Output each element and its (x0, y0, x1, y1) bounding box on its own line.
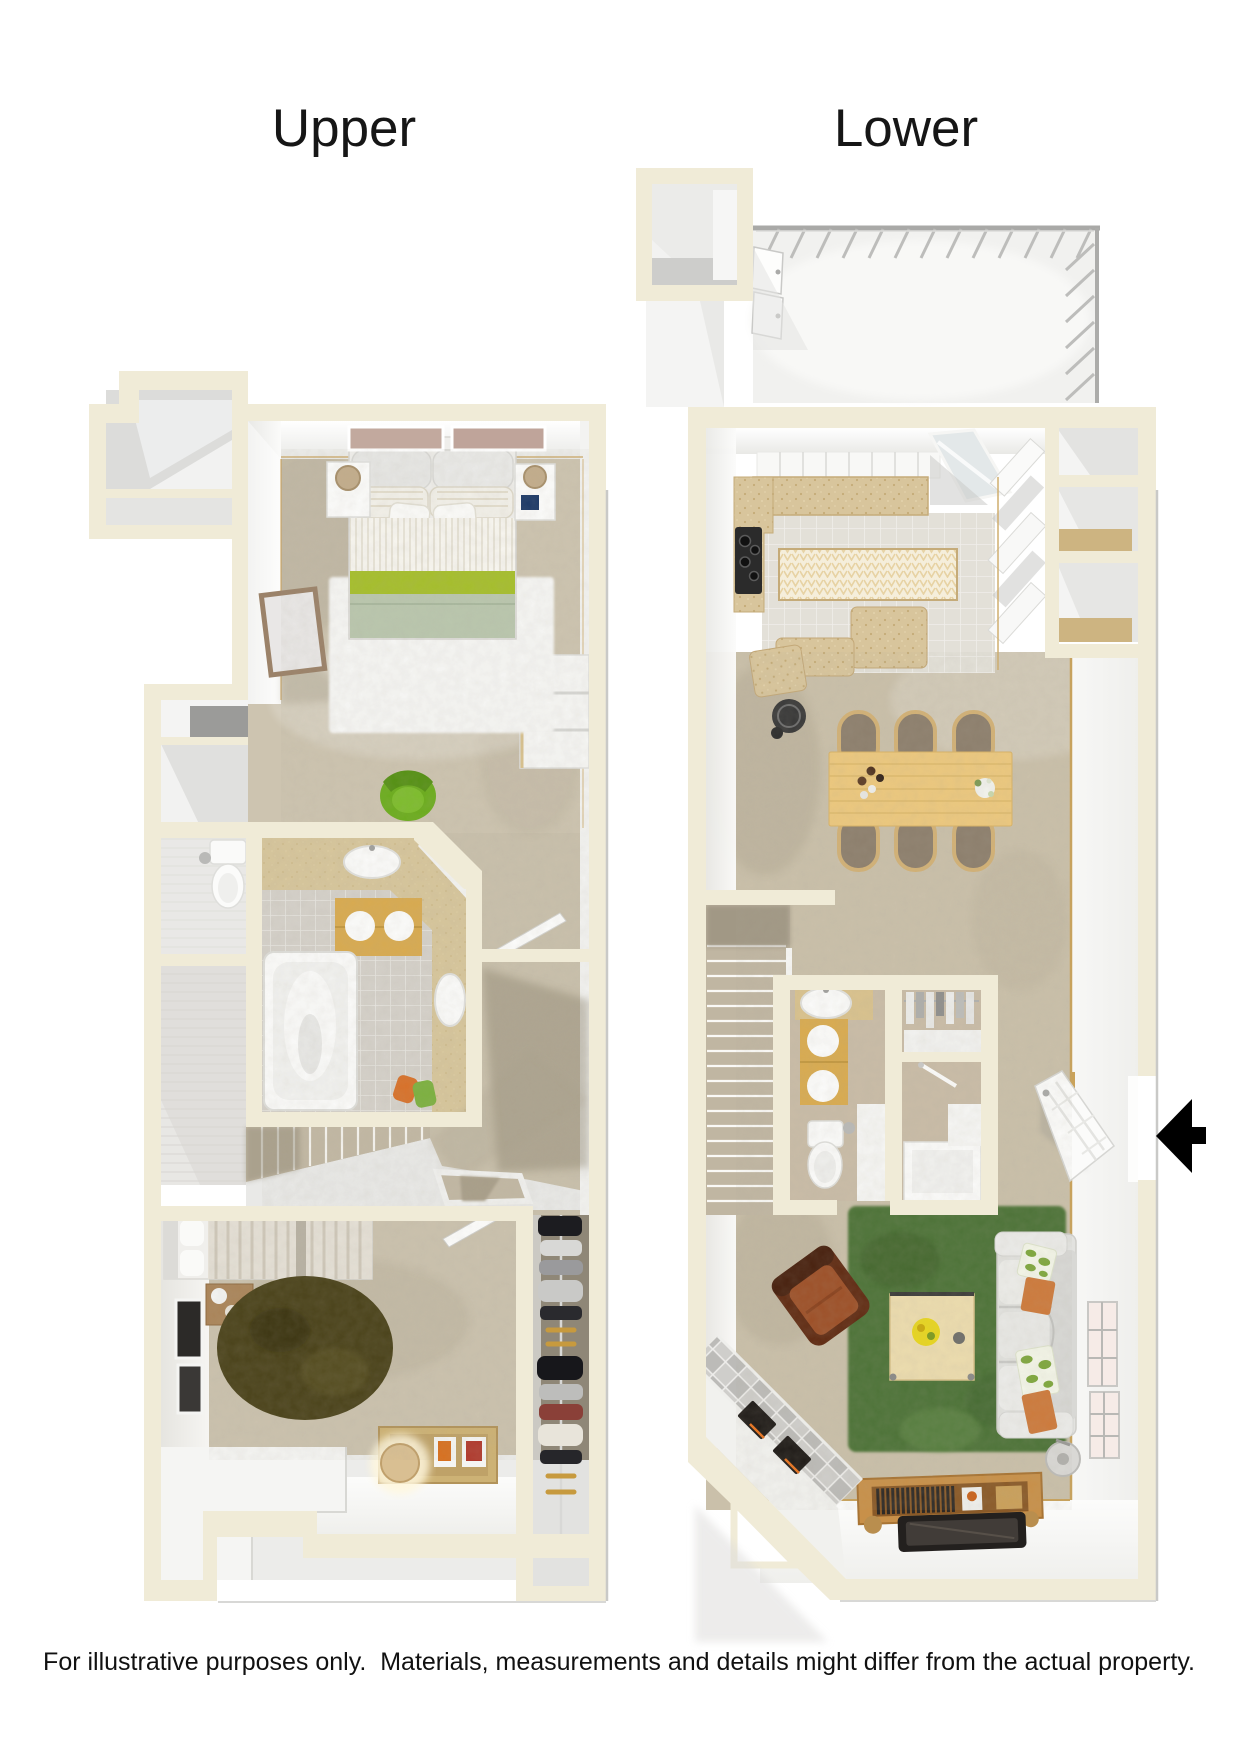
svg-text:Lower: Lower (834, 99, 978, 158)
svg-text:Upper: Upper (272, 99, 416, 158)
svg-text:For illustrative purposes only: For illustrative purposes only. Material… (43, 1648, 1195, 1676)
